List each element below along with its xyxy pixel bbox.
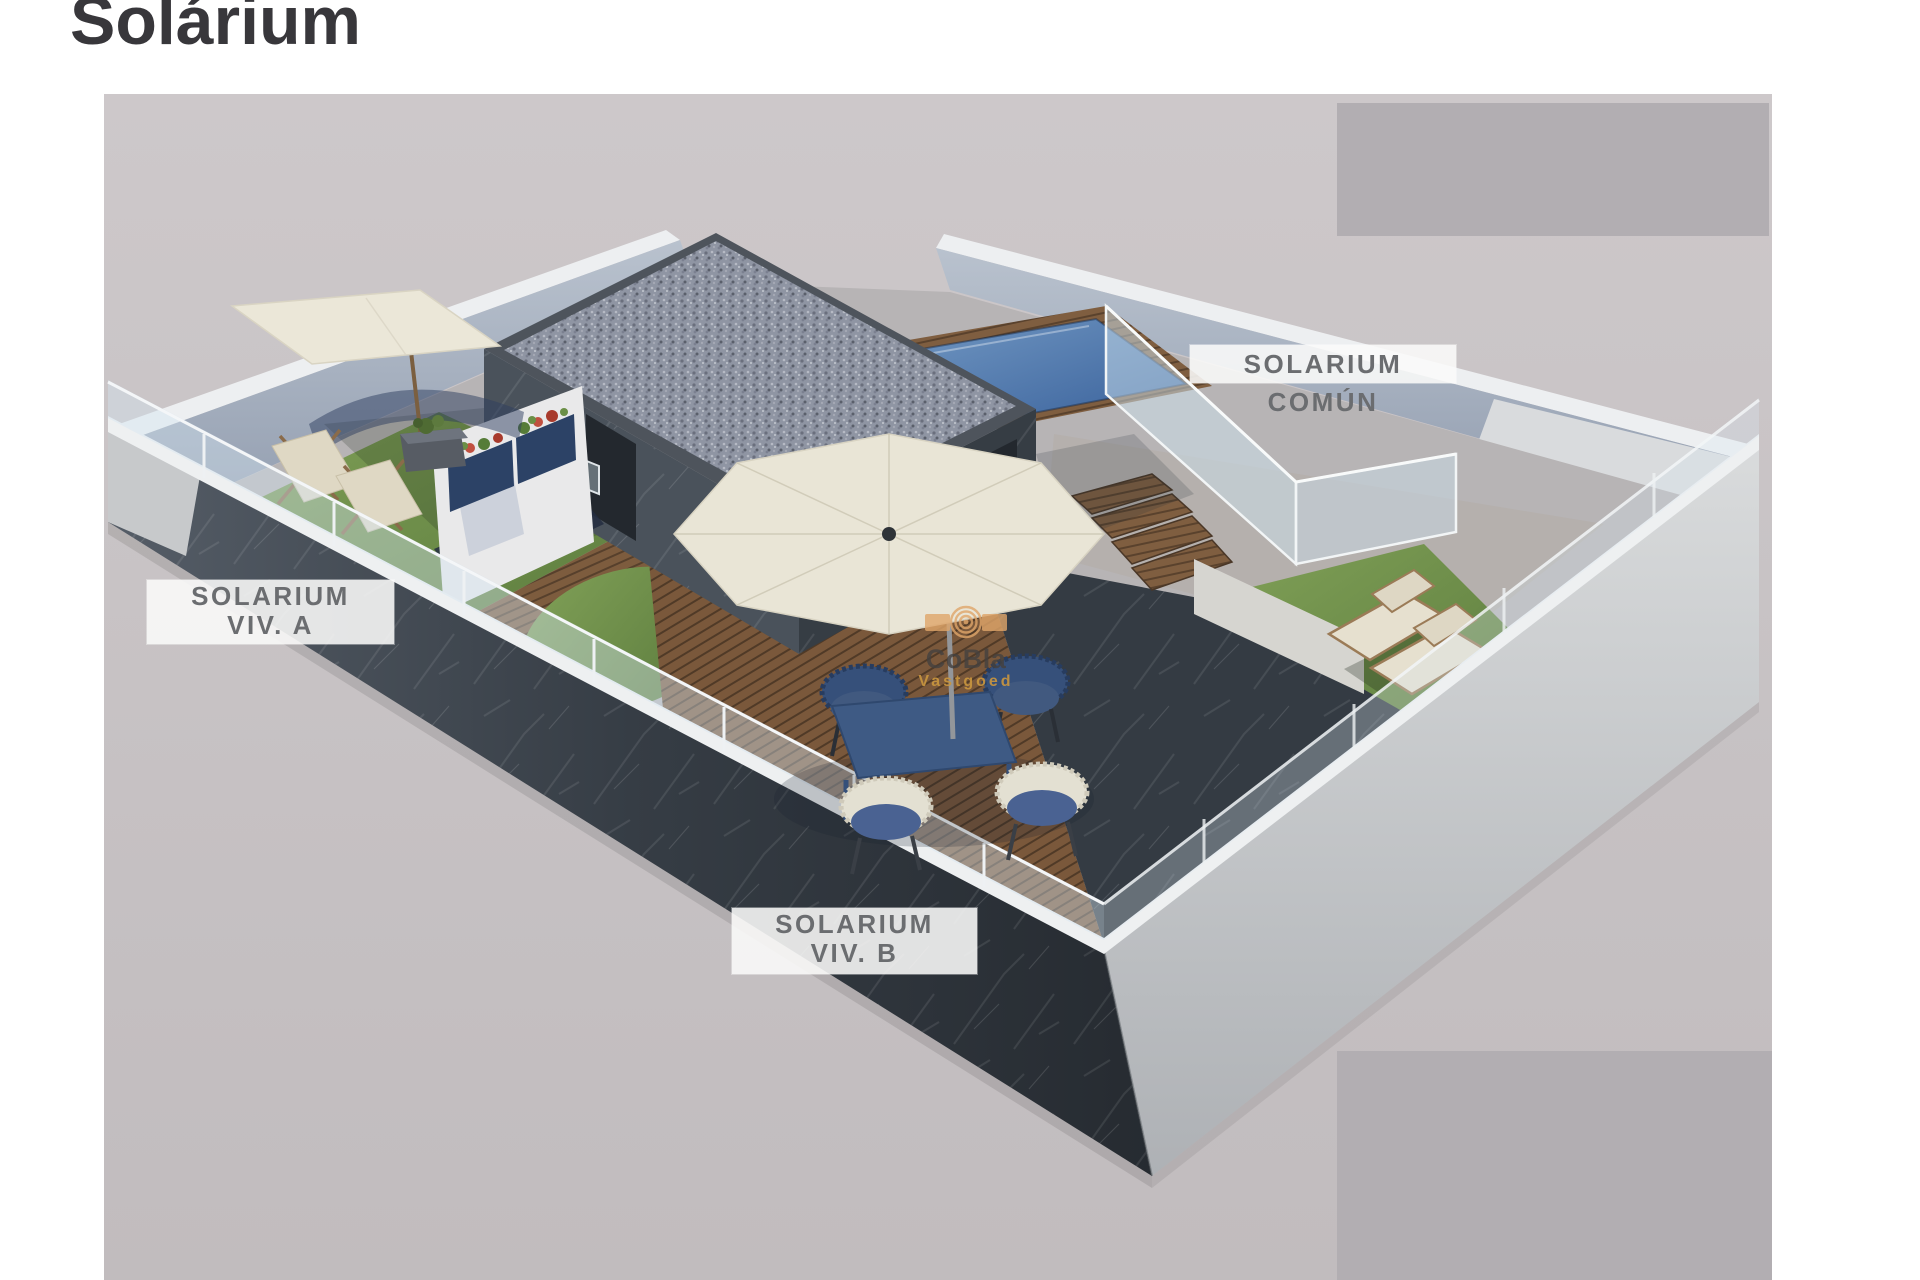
label-viv-b-line2: VIV. B — [732, 939, 977, 968]
label-solarium-viv-a: SOLARIUM VIV. A — [147, 580, 394, 644]
label-solarium-comun: SOLARIUM COMÚN — [1190, 345, 1456, 383]
label-viv-b-line1: SOLARIUM — [732, 910, 977, 939]
label-viv-a-line2: VIV. A — [147, 611, 394, 640]
brochure-page: Solárium — [0, 0, 1920, 1280]
render-canvas: CoBla Vastgoed SOLARIUM COMÚN SOLARIUM V… — [104, 94, 1772, 1280]
redaction-block-bottom-right — [1337, 1051, 1772, 1280]
watermark-tagline: Vastgoed — [910, 672, 1022, 692]
watermark: CoBla Vastgoed — [910, 603, 1022, 692]
label-solarium-viv-b: SOLARIUM VIV. B — [732, 908, 977, 974]
cobla-sun-rings-icon — [922, 603, 1010, 641]
watermark-brand: CoBla — [910, 646, 1022, 672]
redaction-block-top-right — [1337, 103, 1769, 236]
page-title: Solárium — [70, 0, 361, 60]
label-viv-a-line1: SOLARIUM — [147, 582, 394, 611]
